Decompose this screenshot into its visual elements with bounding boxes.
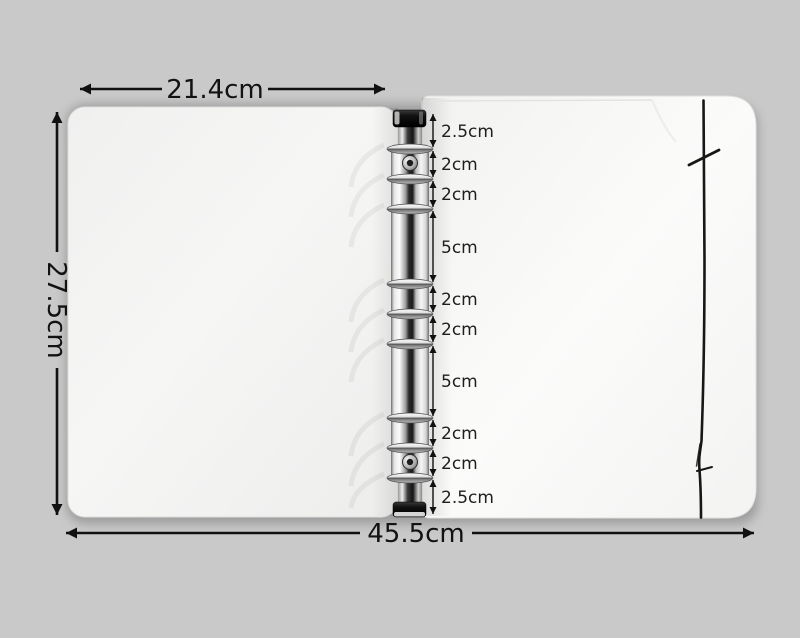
spine-segment-label: 2cm (441, 290, 478, 310)
spine-segment-label: 2cm (441, 320, 478, 340)
spine-top-cap (393, 110, 426, 127)
spine-segment-label: 5cm (441, 238, 478, 258)
spine-segment-label: 2.5cm (441, 488, 494, 508)
binder-left-cover (68, 107, 398, 517)
ring-6 (387, 339, 433, 349)
spine-segment-label: 2.5cm (441, 122, 494, 142)
product-dimension-image: 2.5cm 2cm 2cm 5cm 2cm 2cm 5cm 2cm 2cm 2.… (0, 0, 800, 638)
ring-binder-spine (387, 110, 433, 517)
spine-segment-label: 2cm (441, 424, 478, 444)
spine-segment-label: 5cm (441, 372, 478, 392)
ring-7 (387, 413, 433, 423)
binder-diagram-canvas: 2.5cm 2cm 2cm 5cm 2cm 2cm 5cm 2cm 2cm 2.… (0, 0, 800, 638)
cover-height-label: 27.5cm (41, 261, 71, 359)
total-width-label: 45.5cm (367, 519, 465, 549)
spine-bottom-cap (393, 502, 426, 517)
spine-segment-label: 2cm (441, 454, 478, 474)
ring-2 (387, 174, 433, 184)
spine-rivet-bottom (403, 455, 418, 470)
page-width-label: 21.4cm (166, 75, 264, 105)
spine-segment-label: 2cm (441, 155, 478, 175)
left-cover-surface (68, 107, 398, 517)
right-page-top-edge (430, 100, 652, 101)
ring-3 (387, 204, 433, 214)
spine-segment-label: 2cm (441, 185, 478, 205)
spine-rivet-top (403, 156, 418, 171)
ring-5 (387, 309, 433, 319)
ring-1 (387, 144, 433, 154)
ring-9 (387, 473, 433, 483)
ring-4 (387, 279, 433, 289)
ring-8 (387, 443, 433, 453)
